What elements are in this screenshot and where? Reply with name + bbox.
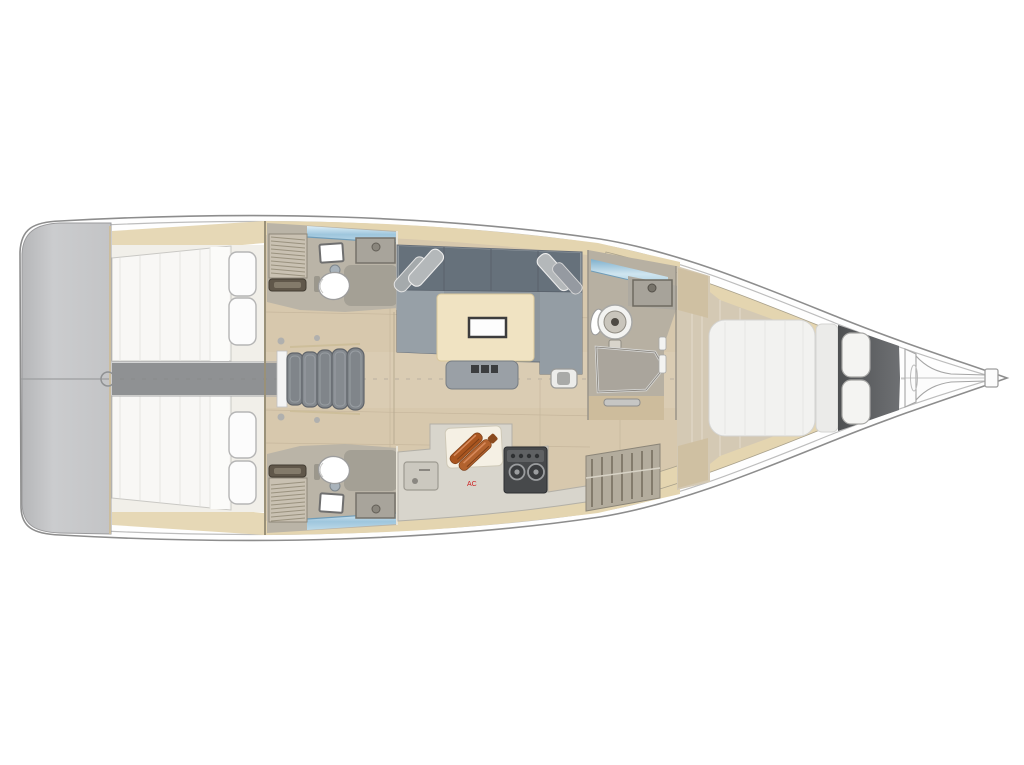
svg-text:AC: AC [467,481,477,488]
